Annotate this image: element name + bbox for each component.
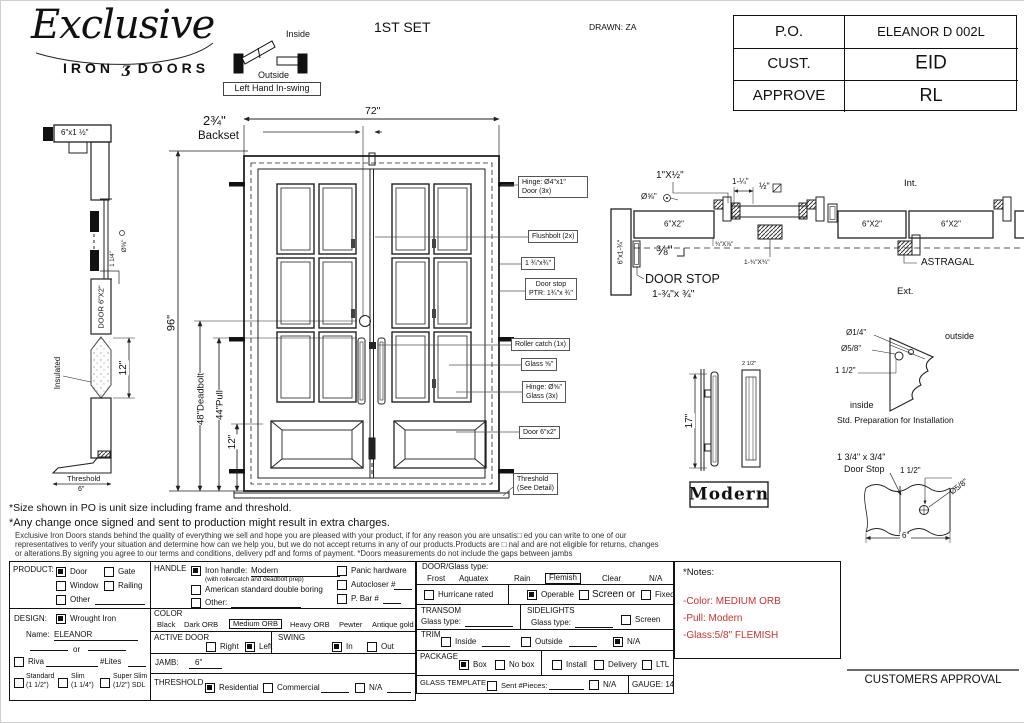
checkbox-operable[interactable]: [527, 590, 537, 600]
handle-label: HANDLE: [154, 565, 186, 574]
callout-ptr-size: 1 ¾"x¾": [521, 257, 555, 270]
handle-dim-17: 17": [685, 414, 695, 429]
po-label: P.O.: [775, 24, 803, 41]
plan-door-stop-title: DOOR STOP: [645, 273, 720, 287]
checkbox-pbar[interactable]: [337, 594, 347, 604]
package-label: PACKAGE: [420, 653, 458, 662]
delivery-label: Delivery: [608, 661, 637, 670]
product-section: PRODUCT: Door Gate Window Railing Other: [9, 561, 151, 609]
checkbox-iron-handle[interactable]: [191, 566, 201, 576]
trim-label: TRIM: [421, 631, 441, 640]
trim-outside-label: Outside: [535, 638, 563, 647]
stop-dim-112: 1 1/2": [900, 467, 921, 476]
trim-na-label: N/A: [627, 638, 640, 647]
dim-width: 72": [363, 106, 382, 118]
pbar-label: P. Bar #: [351, 595, 379, 604]
product-other-label: Other: [70, 596, 90, 605]
cust-value: EID: [915, 54, 947, 75]
iron-handle-note: (with rollercatch and deadbolt prep): [205, 577, 304, 584]
prep-caption: Std. Preparation for Installation: [837, 416, 954, 425]
checkbox-package-nobox[interactable]: [495, 660, 505, 670]
po-value: ELEANOR D 002L: [877, 25, 985, 39]
note-pull: -Pull: Modern: [683, 613, 742, 624]
sent-pieces-blank[interactable]: [549, 689, 584, 690]
wrought-iron-label: Wrought Iron: [70, 615, 116, 624]
active-door-label: ACTIVE DOOR: [154, 634, 209, 643]
prep-dia-14: Ø1/4": [846, 329, 866, 338]
logo-script: Exclusive: [31, 3, 214, 47]
glass-flemish[interactable]: Flemish: [545, 573, 581, 584]
product-window-label: Window: [70, 582, 98, 591]
logo-scroll-icon: ʒ: [122, 61, 130, 77]
prep-inside-label: inside: [850, 401, 874, 411]
checkbox-delivery[interactable]: [594, 660, 604, 670]
install-label: Install: [566, 661, 587, 670]
color-black[interactable]: Black: [157, 621, 175, 629]
jamb-section: JAMB: 6": [150, 653, 416, 674]
checkbox-active-right[interactable]: [206, 642, 216, 652]
plan-13434: 1-¾"X¾": [744, 259, 770, 266]
po-table: P.O. ELEANOR D 002L CUST. EID APPROVE RL: [733, 15, 1017, 111]
fixed-label: Fixed: [655, 591, 675, 600]
plan-half: ½": [759, 182, 770, 192]
checkbox-threshold-residential[interactable]: [205, 683, 215, 693]
checkbox-screen[interactable]: [579, 590, 589, 600]
dim-pull-len: 12": [228, 435, 238, 450]
color-label: COLOR: [154, 610, 182, 619]
drawn-label: DRAWN: ZA: [589, 23, 636, 32]
trim-outside-blank[interactable]: [569, 646, 597, 647]
threshold-section: THRESHOLD Residential Commercial N/A: [150, 673, 416, 701]
package-box-label: Box: [473, 661, 487, 670]
sidelights-section: SIDELIGHTS Glass type: Screen: [520, 604, 674, 630]
transom-label: TRANSOM: [421, 607, 461, 616]
iron-handle-label: Iron handle:: [205, 567, 247, 576]
threshold-commercial-blank[interactable]: [321, 692, 349, 693]
hurricane-label: Hurricane rated: [438, 591, 493, 600]
checkbox-riva[interactable]: [14, 657, 24, 667]
panic-hardware-label: Panic hardware: [351, 567, 407, 576]
checkbox-threshold-commercial[interactable]: [263, 683, 273, 693]
swing-label: SWING: [278, 634, 305, 643]
transom-glass-blank[interactable]: [465, 626, 513, 627]
product-gate-label: Gate: [118, 568, 135, 577]
side-dia-label: Ø⅝": [122, 240, 129, 253]
side-quarter-label: 1 1/4": [110, 251, 116, 266]
package-nobox-label: No box: [509, 661, 534, 670]
logo-subtitle: IRON ʒ DOORS: [56, 61, 216, 77]
side-door-label: DOOR 6"X2": [97, 285, 105, 328]
checkbox-ltl[interactable]: [642, 660, 652, 670]
checkbox-american-boring[interactable]: [191, 585, 201, 595]
operable-label: Operable: [541, 591, 574, 600]
plan-int-label: Int.: [904, 179, 917, 189]
active-right-label: Right: [220, 643, 239, 652]
stop-name: Door Stop: [844, 465, 885, 475]
product-other-blank[interactable]: [95, 604, 145, 605]
dim-deadbolt: 48"Deadbolt: [196, 373, 206, 425]
po-table-vline: [844, 16, 845, 112]
checkbox-trim-outside[interactable]: [521, 637, 531, 647]
trim-inside-label: Inside: [455, 638, 476, 647]
swing-inside-label: Inside: [286, 30, 310, 40]
callout-door-size: Door 6"x2": [519, 426, 560, 439]
stop-size: 1 3/4" x 3/4": [837, 453, 885, 463]
threshold-na-blank[interactable]: [387, 692, 411, 693]
cust-label: CUST.: [767, 56, 810, 73]
checkbox-fixed[interactable]: [641, 590, 651, 600]
checkbox-wrought-iron[interactable]: [56, 614, 66, 624]
checkbox-hurricane[interactable]: [424, 590, 434, 600]
checkbox-sidelights-screen[interactable]: [621, 615, 631, 625]
checkbox-sent-pieces[interactable]: [487, 681, 497, 691]
disclaimer-fine3: or alterations.By signing you agree to o…: [15, 550, 572, 559]
design-name-label: Name:: [26, 631, 50, 640]
product-label: PRODUCT:: [13, 566, 54, 575]
checkbox-swing-in[interactable]: [332, 642, 342, 652]
handle-name: Modern: [689, 486, 769, 505]
color-pewter[interactable]: Pewter: [339, 621, 362, 629]
side-threshold-label: Threshold: [67, 475, 100, 483]
checkbox-package-box[interactable]: [459, 660, 469, 670]
plan-astragal-label: ASTRAGAL: [921, 257, 974, 268]
approve-value: RL: [919, 86, 942, 106]
sidelights-screen-label: Screen: [635, 616, 660, 625]
color-section: COLOR Black Dark ORB Medium ORB Heavy OR…: [150, 608, 416, 632]
glass-na[interactable]: N/A: [649, 575, 662, 584]
lites-blank[interactable]: [128, 666, 146, 667]
screen-or-label: Screen or: [592, 589, 635, 600]
backset-value: 2¾": [203, 114, 226, 128]
swing-in-label: In: [346, 643, 353, 652]
checkbox-product-other[interactable]: [56, 595, 66, 605]
backset-label: Backset: [198, 130, 239, 143]
swing-section: SWING In Out: [271, 631, 416, 654]
prep-dia-58: Ø5/8": [841, 345, 861, 354]
glass-template-section: GLASS TEMPLATE Sent #Pieces: N/A: [416, 675, 629, 694]
dim-pull: 44"Pull: [215, 390, 225, 420]
superslim-label: Super Slim: [113, 673, 147, 681]
plan-38: ⅜": [656, 243, 673, 258]
set-title: 1ST SET: [374, 20, 431, 35]
design-name-value[interactable]: ELEANOR: [54, 631, 138, 641]
checkbox-product-window[interactable]: [56, 581, 66, 591]
side-dim-12: 12": [119, 361, 129, 376]
package-section: PACKAGE Box No box: [416, 650, 542, 676]
handle-other-label: Other:: [205, 599, 227, 608]
swing-outside-label: Outside: [258, 71, 289, 81]
note-glass: -Glass:5/8" FLEMISH: [683, 630, 778, 641]
glass-type-label: DOOR/Glass type:: [422, 563, 488, 572]
logo-iron: IRON: [63, 60, 114, 76]
slim-label: Slim: [71, 673, 85, 681]
callout-flushbolt: Flushbolt (2x): [528, 230, 578, 243]
color-antique-gold[interactable]: Antique gold: [372, 621, 414, 629]
plan-1xhalf: 1"X½": [656, 170, 684, 181]
checkbox-install[interactable]: [552, 660, 562, 670]
checkbox-product-gate[interactable]: [104, 567, 114, 577]
autocloser-blank[interactable]: [394, 589, 412, 590]
color-medium-orb[interactable]: Medium ORB: [229, 619, 282, 629]
stop-dim-6: 6": [900, 532, 911, 541]
checkbox-standard[interactable]: [14, 678, 24, 688]
ltl-label: LTL: [656, 661, 669, 670]
checkbox-autocloser[interactable]: [337, 580, 347, 590]
side-dim-6: 6": [78, 486, 84, 494]
prep-dim-112: 1 1/2": [835, 367, 856, 376]
autocloser-label: Autocloser #: [351, 581, 395, 590]
checkbox-product-door[interactable]: [56, 567, 66, 577]
threshold-commercial-label: Commercial: [277, 684, 320, 693]
color-dark-orb[interactable]: Dark ORB: [184, 621, 218, 629]
notes-section: *Notes: -Color: MEDIUM ORB -Pull: Modern…: [674, 561, 841, 659]
callout-threshold: Threshold (See Detail): [513, 473, 558, 495]
trim-inside-blank[interactable]: [482, 646, 510, 647]
product-railing-label: Railing: [118, 582, 142, 591]
checkbox-template-na[interactable]: [589, 680, 599, 690]
plan-block1-label: 6"X2": [664, 221, 684, 230]
design-section: DESIGN: Wrought Iron Name: ELEANOR or Ri…: [9, 608, 151, 701]
color-heavy-orb[interactable]: Heavy ORB: [290, 621, 330, 629]
swing-out-label: Out: [381, 643, 394, 652]
callout-glass: Glass ⅝": [521, 358, 557, 371]
glass-aquatex[interactable]: Aquatex: [459, 575, 488, 584]
glass-template-label: GLASS TEMPLATE: [420, 679, 486, 687]
pbar-blank[interactable]: [383, 603, 401, 604]
gauge-label: GAUGE: 14: [632, 681, 674, 690]
threshold-label: THRESHOLD: [154, 679, 203, 688]
side-insulated-label: Insulated: [54, 357, 62, 389]
checkbox-swing-out[interactable]: [367, 642, 377, 652]
hurricane-section: Hurricane rated: [416, 584, 509, 605]
american-boring-label: American standard double boring: [205, 586, 323, 595]
glass-type-section: DOOR/Glass type: Frost Aquatex Rain Flem…: [416, 561, 674, 585]
lites-label: #Lites: [100, 658, 121, 667]
prep-outside-label: outside: [945, 332, 974, 342]
checkbox-trim-inside[interactable]: [441, 637, 451, 647]
side-top-label: 6"x1 ½": [61, 129, 88, 138]
plan-block2-label: 6"X2": [862, 221, 882, 230]
plan-114: 1-¼": [732, 178, 749, 187]
standard-size-label: (1 1/2"): [26, 682, 49, 690]
plan-jamb-label: 6"x1-¾": [618, 240, 625, 264]
checkbox-panic-hardware[interactable]: [337, 566, 347, 576]
note-color: -Color: MEDIUM ORB: [683, 596, 781, 607]
gauge-section: GAUGE: 14: [628, 675, 674, 694]
sidelights-glass-type-label: Glass type:: [531, 619, 571, 628]
transom-section: TRANSOM Glass type:: [416, 604, 521, 630]
sidelights-label: SIDELIGHTS: [527, 607, 575, 616]
checkbox-trim-na[interactable]: [613, 637, 623, 647]
plan-door-stop-size: 1-¾"x ¾": [652, 289, 694, 301]
side-section-drawing: [43, 125, 135, 484]
jamb-label: JAMB:: [155, 659, 179, 668]
handle-section: HANDLE Iron handle: Modern (with rollerc…: [150, 561, 416, 609]
plan-dia-58: Ø⅝": [641, 193, 657, 202]
sent-pieces-label: Sent #Pieces:: [501, 682, 547, 690]
callout-hinge-glass: Hinge: Ø⅝" Glass (3x): [522, 381, 566, 403]
checkbox-handle-other[interactable]: [191, 598, 201, 608]
swing-tag: Left Hand In-swing: [223, 82, 321, 96]
notes-title: *Notes:: [683, 568, 714, 578]
plan-ext-label: Ext.: [897, 287, 913, 297]
superslim-size-label: (1/2") SDL: [113, 682, 145, 690]
glass-rain[interactable]: Rain: [514, 575, 530, 584]
checkbox-superslim[interactable]: [100, 678, 110, 688]
dim-height: 96": [167, 315, 178, 331]
or-line-right: [88, 650, 126, 651]
threshold-residential-label: Residential: [219, 684, 259, 693]
handle-dim-25: 2 1/2": [742, 361, 756, 367]
customers-approval-label: CUSTOMERS APPROVAL: [847, 674, 1019, 687]
callout-door-stop: Door stop PTR: 1¾"x ¾": [525, 278, 577, 300]
callout-roller-catch: Roller catch (1x): [511, 338, 570, 351]
product-door-label: Door: [70, 568, 87, 577]
po-table-hline2: [734, 80, 1018, 81]
disclaimer-line2: *Any change once signed and sent to prod…: [9, 517, 390, 529]
riva-blank[interactable]: [46, 666, 98, 667]
delivery-section: Install Delivery LTL: [541, 650, 674, 676]
sidelights-glass-blank[interactable]: [575, 627, 613, 628]
po-table-hline1: [734, 48, 1018, 49]
callout-hinge-door: Hinge: Ø4"x1" Door (3x): [518, 176, 588, 198]
design-or-label: or: [73, 646, 80, 655]
disclaimer-line1: *Size shown in PO is unit size including…: [9, 503, 291, 515]
plan-3478: ¾"X⅞": [715, 242, 733, 249]
approve-label: APPROVE: [753, 88, 826, 105]
plan-block3-label: 6"X2": [941, 221, 961, 230]
template-na-label: N/A: [603, 681, 616, 690]
trim-section: TRIM Inside Outside N/A: [416, 629, 674, 651]
threshold-na-label: N/A: [369, 684, 382, 693]
glass-clear[interactable]: Clear: [602, 575, 621, 584]
transom-glass-type-label: Glass type:: [421, 618, 461, 627]
checkbox-product-railing[interactable]: [104, 581, 114, 591]
or-line-left: [30, 650, 68, 651]
logo-doors: DOORS: [138, 60, 209, 76]
front-door-drawing: [169, 119, 528, 498]
checkbox-threshold-na[interactable]: [355, 683, 365, 693]
design-label: DESIGN:: [14, 615, 47, 624]
jamb-value[interactable]: 6": [189, 659, 222, 669]
door-spec-sheet: Exclusive IRON ʒ DOORS Inside Outside Le…: [0, 0, 1024, 723]
standard-label: Standard: [26, 673, 54, 681]
riva-label: Riva: [28, 658, 44, 667]
operable-section: Operable Screen or Fixed: [508, 584, 674, 605]
glass-frost[interactable]: Frost: [427, 575, 445, 584]
slim-size-label: (1 1/4"): [71, 682, 94, 690]
checkbox-active-left[interactable]: [245, 642, 255, 652]
checkbox-slim[interactable]: [58, 678, 68, 688]
active-door-section: ACTIVE DOOR Right Left: [150, 631, 272, 654]
